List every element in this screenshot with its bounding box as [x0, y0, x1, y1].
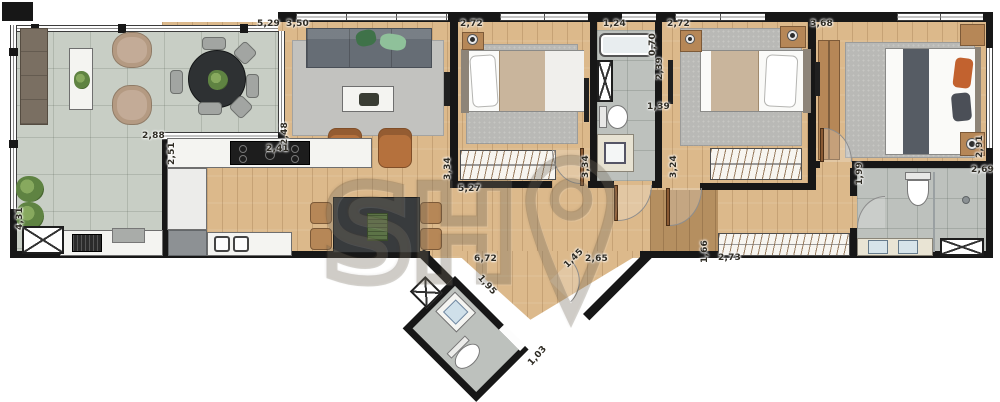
bedroom1-bath-wall — [590, 22, 597, 183]
terrace-chair — [202, 37, 226, 50]
bedroom2-bottom-wall — [700, 183, 808, 190]
shower-head — [962, 196, 970, 204]
railing-post — [9, 140, 18, 148]
railing-post — [9, 48, 18, 56]
shaft — [597, 60, 613, 102]
bathroom-window — [622, 13, 656, 21]
burner — [239, 145, 247, 153]
headboard — [803, 49, 811, 113]
dim-label: 0,70 — [649, 33, 658, 56]
terrace-chair — [170, 70, 183, 94]
dim-label: 2,39 — [656, 57, 665, 80]
burner — [291, 145, 299, 153]
dim-label: 2,91 — [976, 135, 985, 158]
right-wall-window — [986, 48, 993, 148]
powder-door-opening — [499, 324, 526, 351]
bedroom1-wardrobe — [460, 150, 556, 180]
dining-chair — [420, 228, 442, 250]
refrigerator — [168, 230, 207, 256]
terrace-chair — [198, 102, 222, 115]
master-toilet — [903, 172, 933, 208]
apartment-floor-plan: SH 5,29 3,50 2,72 1,24 2,72 3,68 2,88 2,… — [0, 0, 1000, 402]
master-sink — [898, 240, 918, 254]
bedroom2-stool-decor — [686, 35, 694, 43]
dim-label: 2,48 — [281, 122, 290, 145]
bed-runner — [903, 49, 929, 154]
leather-armchair — [378, 128, 412, 168]
kitchen-sink — [214, 236, 230, 252]
pillow — [764, 54, 799, 108]
burner — [291, 155, 299, 163]
kitchen-sink — [233, 236, 249, 252]
dining-chair — [310, 202, 332, 224]
dim-label: 1,66 — [701, 240, 710, 263]
bedroom2-wardrobe — [710, 148, 802, 180]
toilet-bowl — [607, 105, 628, 129]
dim-label: 1,39 — [647, 103, 670, 112]
dim-label: 3,68 — [810, 20, 833, 29]
dim-label: 2,51 — [168, 142, 177, 165]
kitchen-cabinet — [167, 168, 207, 230]
master-bottom-wall2 — [852, 161, 986, 168]
railing-post — [240, 24, 248, 33]
master-sink — [868, 240, 888, 254]
powder-vanity — [435, 292, 476, 333]
dim-label: 3,34 — [444, 157, 453, 180]
powder-shaft — [410, 276, 443, 309]
dim-label: 5,29 — [257, 20, 280, 29]
coffee-table — [342, 86, 394, 112]
duvet — [711, 51, 759, 111]
bath-vanity — [597, 134, 634, 172]
dim-label: 3,50 — [286, 20, 309, 29]
burner — [239, 155, 247, 163]
dim-label: 2,73 — [718, 254, 741, 263]
dim-label: 2,72 — [460, 20, 483, 29]
shower-glass — [933, 172, 935, 252]
dim-label: 3,34 — [582, 155, 591, 178]
master-bottom-wall — [808, 161, 820, 168]
duvet — [499, 51, 545, 111]
bathtub — [599, 33, 653, 57]
barbecue-grill — [72, 234, 102, 252]
bedroom2-bed — [700, 50, 808, 112]
dim-label: 1,24 — [603, 20, 626, 29]
dim-label: 2,88 — [142, 132, 165, 141]
wicker-chair — [112, 85, 152, 125]
table-plant — [208, 70, 228, 90]
dim-label: 1,03 — [527, 345, 549, 368]
pillow-orange — [952, 57, 974, 89]
dim-label: 2,65 — [585, 255, 608, 264]
wicker-chair — [112, 32, 152, 68]
dim-label: 5,27 — [458, 185, 481, 194]
master-nightstand — [960, 24, 985, 46]
dim-label: 1,99 — [856, 162, 865, 185]
plant-pot — [74, 71, 90, 89]
table-tray — [359, 93, 379, 106]
pillow — [469, 54, 499, 108]
shower-floor — [940, 238, 984, 256]
corner-column — [2, 2, 33, 21]
bath-bottom-wall — [588, 181, 614, 188]
powder-toilet — [444, 334, 485, 375]
bedroom1-lamp — [468, 35, 477, 44]
blanket — [545, 51, 584, 111]
headboard — [461, 49, 469, 113]
planter-box — [22, 226, 64, 254]
terrace-sofa — [20, 28, 48, 125]
bedroom2-tv — [668, 60, 673, 104]
dim-label: 2,41 — [266, 145, 289, 154]
master-window — [897, 13, 983, 21]
dining-chair — [420, 202, 442, 224]
dining-table — [333, 197, 420, 253]
terrace-railing-top — [16, 25, 278, 32]
bath-bottom-wall2 — [652, 181, 662, 188]
bedroom1-tv — [584, 78, 589, 122]
powder-sink — [443, 299, 468, 324]
table-runner-plant — [367, 213, 388, 241]
terrace-console-table — [69, 48, 93, 110]
masterbath-left-wall2 — [850, 228, 857, 258]
living-window — [296, 13, 448, 21]
dim-label: 2,72 — [667, 20, 690, 29]
bedroom1-window — [500, 13, 588, 21]
living-tv — [444, 72, 450, 106]
dim-label: 6,72 — [474, 255, 497, 264]
terrace-plant — [16, 176, 44, 202]
dim-label: 2,69 — [971, 166, 994, 175]
toilet-tank — [599, 106, 607, 128]
bath-sink — [604, 142, 626, 164]
dim-label: 3,24 — [670, 155, 679, 178]
toilet — [599, 104, 629, 130]
bedroom1-bed — [462, 50, 584, 112]
dim-label: 4,31 — [16, 207, 25, 230]
master-tv — [815, 62, 820, 96]
terrace-chair — [246, 74, 259, 98]
dining-chair — [310, 228, 332, 250]
pillow-gray — [951, 92, 972, 122]
toilet-tank — [905, 172, 931, 180]
toilet-bowl — [907, 180, 929, 206]
bedroom2-lamp — [788, 31, 797, 40]
grill-side-table — [112, 228, 145, 243]
